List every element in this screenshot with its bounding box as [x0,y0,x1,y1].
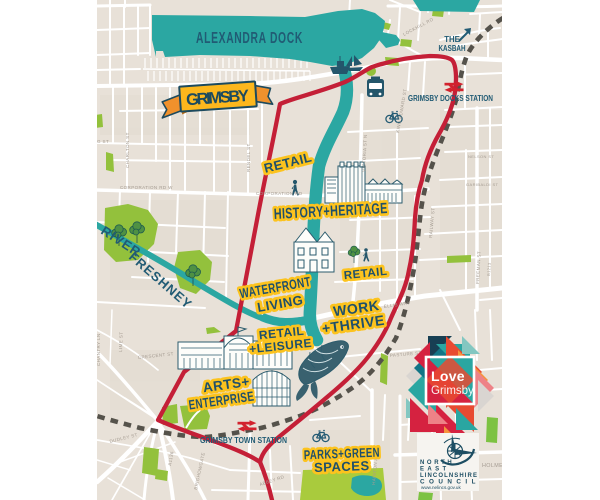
svg-text:Grimsby.: Grimsby. [431,385,476,397]
svg-text:EAST: EAST [420,467,450,473]
svg-text:NELSON ST: NELSON ST [468,154,494,159]
svg-text:GRIMSBY TOWN STATION: GRIMSBY TOWN STATION [200,435,287,445]
svg-text:RENDEL ST: RENDEL ST [246,143,251,172]
svg-text:G ST: G ST [97,139,109,144]
svg-text:HOLME: HOLME [482,463,503,469]
svg-text:LIME ST: LIME ST [118,332,124,352]
svg-text:NORTH: NORTH [420,460,454,466]
svg-text:SPACES: SPACES [314,458,370,475]
svg-text:CHARLTON ST: CHARLTON ST [125,132,130,168]
svg-text:GRIMSBY DOCKS STATION: GRIMSBY DOCKS STATION [408,93,493,103]
svg-text:THE: THE [444,35,460,44]
svg-text:www.nelincs.gov.uk: www.nelincs.gov.uk [421,485,461,490]
svg-text:GARIBALDI ST: GARIBALDI ST [466,182,499,187]
svg-text:KASBAH: KASBAH [439,44,466,53]
svg-text:CORPORATION RD: CORPORATION RD [256,191,303,196]
svg-text:Love: Love [431,368,465,384]
svg-text:CORPORATION RD W: CORPORATION RD W [120,185,173,190]
svg-text:B1213: B1213 [486,262,492,276]
svg-text:ALEXANDRA DOCK: ALEXANDRA DOCK [196,30,303,47]
